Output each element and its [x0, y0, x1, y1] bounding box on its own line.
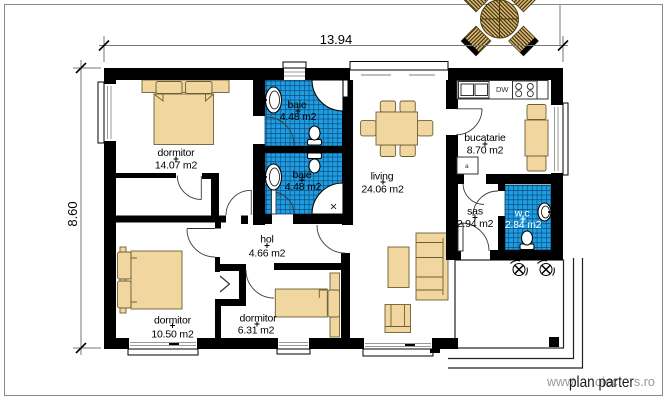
svg-text:dormitor: dormitor	[240, 313, 278, 325]
svg-text:4.48 m2: 4.48 m2	[285, 181, 322, 193]
svg-text:8.60: 8.60	[65, 201, 80, 226]
svg-text:s.ro: s.ro	[634, 375, 655, 389]
svg-text:10.50 m2: 10.50 m2	[151, 329, 194, 341]
svg-text:6.31 m2: 6.31 m2	[238, 325, 275, 337]
svg-text:13.94: 13.94	[320, 32, 353, 47]
svg-text:DW: DW	[496, 85, 509, 94]
svg-text:plan parter: plan parter	[569, 374, 634, 391]
svg-text:24.06 m2: 24.06 m2	[361, 184, 404, 196]
svg-text:4.66 m2: 4.66 m2	[249, 248, 286, 260]
svg-text:a: a	[465, 163, 469, 170]
svg-text:w.c: w.c	[514, 208, 530, 220]
svg-text:living: living	[371, 171, 394, 183]
svg-text:baie: baie	[287, 99, 306, 111]
